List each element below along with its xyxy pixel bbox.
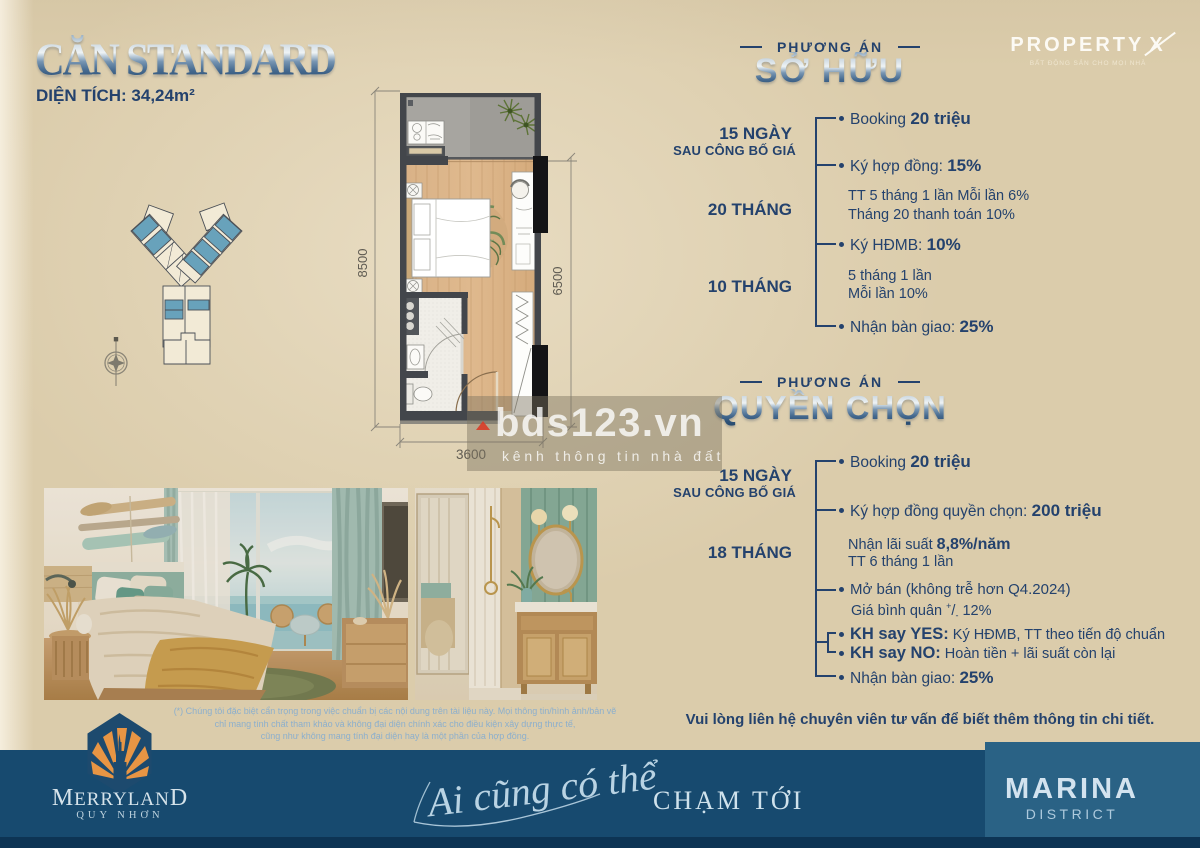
svg-text:CHẠM TỚI: CHẠM TỚI [653,786,804,815]
svg-text:6500: 6500 [550,267,565,296]
svg-text:MERRYLAND: MERRYLAND [52,785,188,811]
svg-text:QUY NHƠN: QUY NHƠN [76,810,163,821]
svg-text:Ai cũng có thể: Ai cũng có thể [422,752,663,826]
svg-text:8500: 8500 [355,249,370,278]
